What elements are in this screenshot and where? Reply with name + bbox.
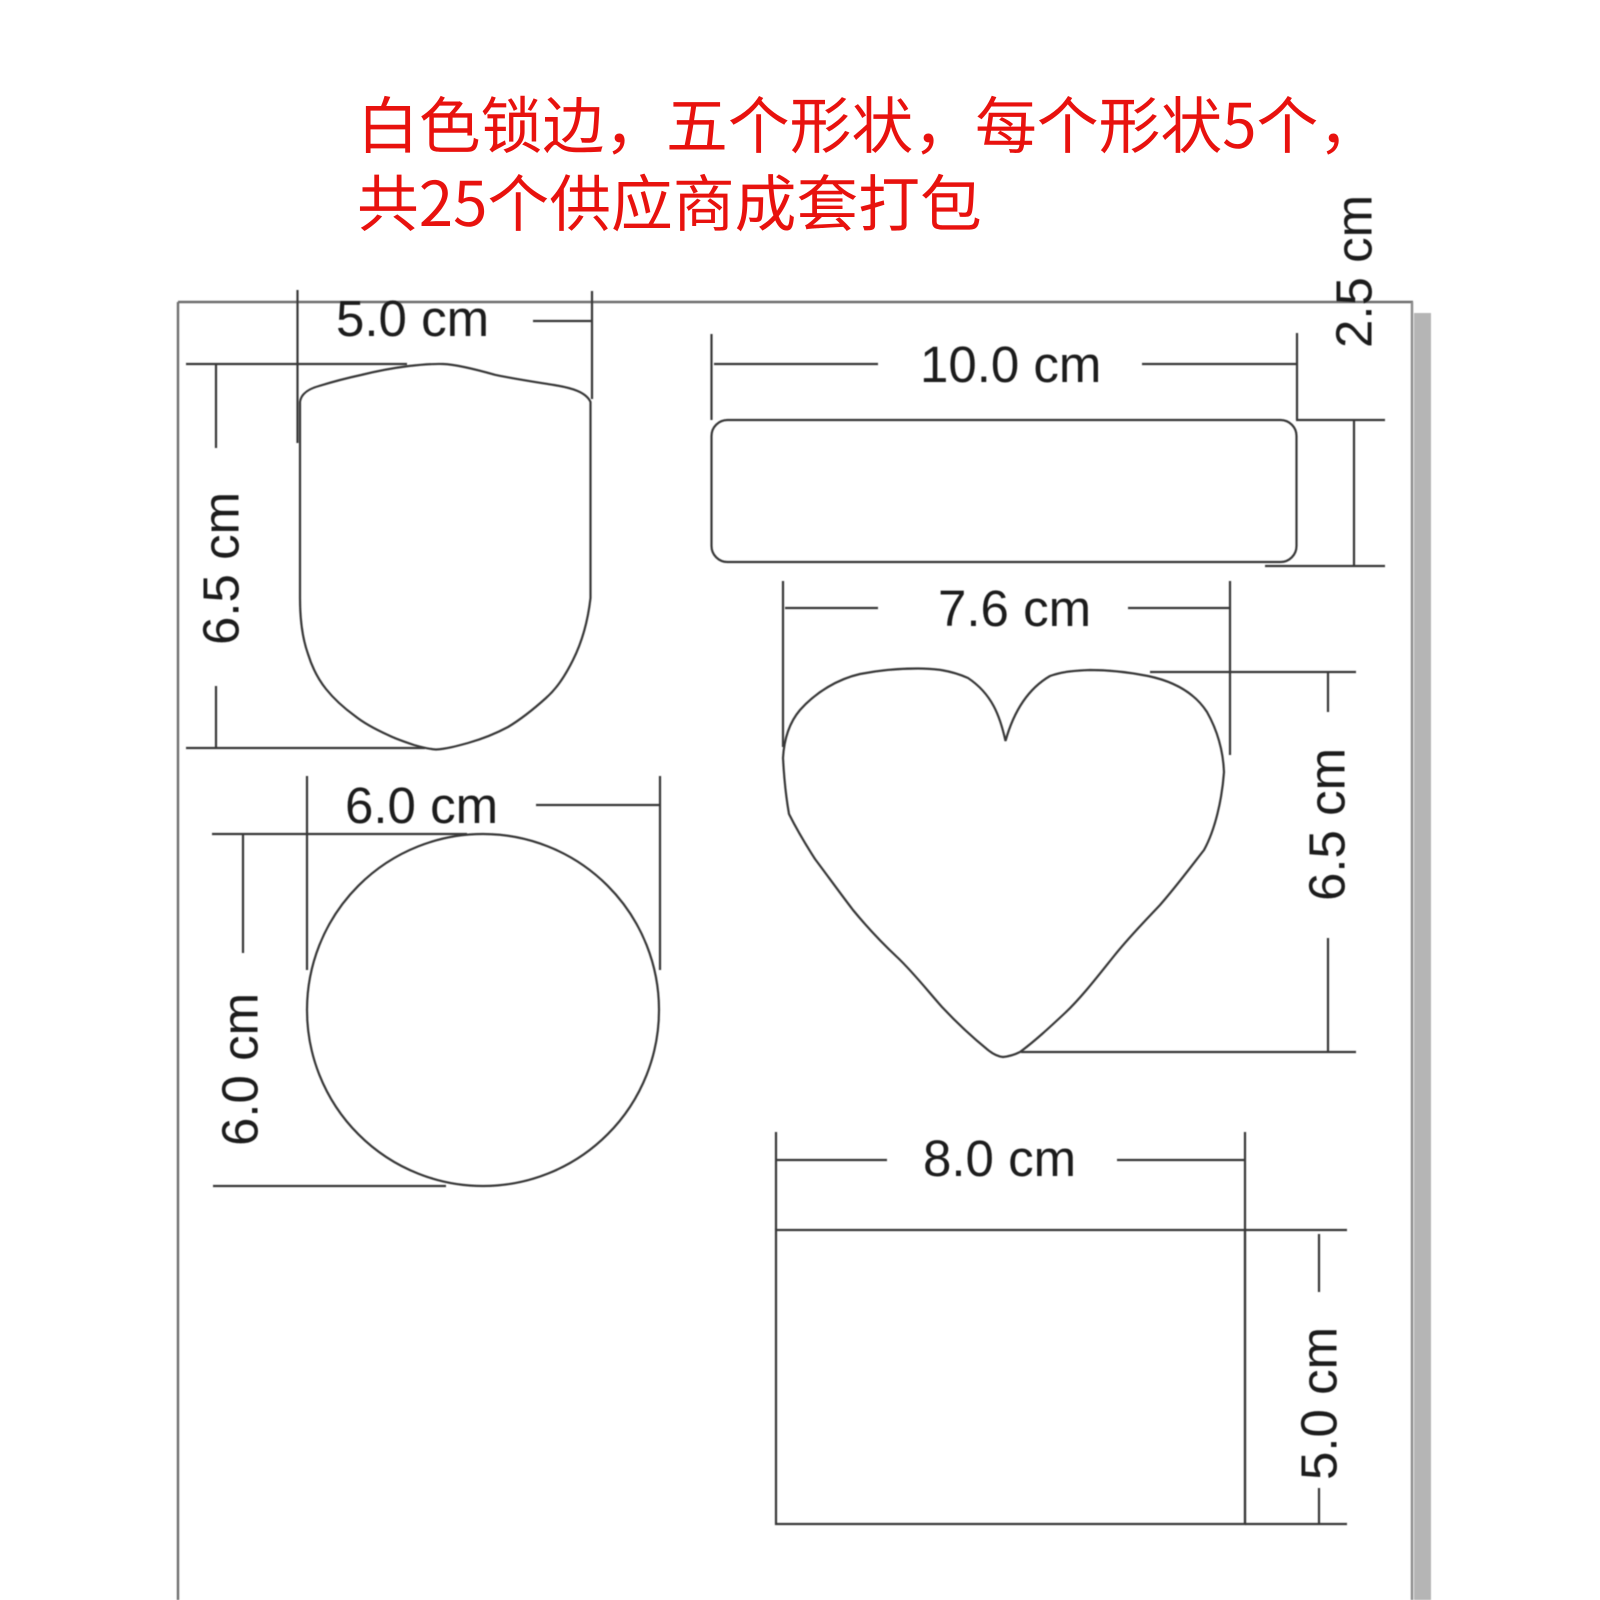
svg-text:6.5 cm: 6.5 cm	[1299, 748, 1356, 901]
svg-text:5.0 cm: 5.0 cm	[1291, 1327, 1348, 1480]
svg-text:6.5 cm: 6.5 cm	[193, 492, 250, 645]
svg-text:8.0 cm: 8.0 cm	[923, 1130, 1076, 1187]
svg-text:10.0 cm: 10.0 cm	[920, 336, 1101, 393]
svg-text:2.5 cm: 2.5 cm	[1326, 195, 1383, 348]
svg-text:6.0 cm: 6.0 cm	[212, 993, 269, 1146]
svg-text:7.6 cm: 7.6 cm	[938, 580, 1091, 637]
svg-text:6.0 cm: 6.0 cm	[345, 777, 498, 834]
svg-text:5.0 cm: 5.0 cm	[336, 290, 489, 347]
